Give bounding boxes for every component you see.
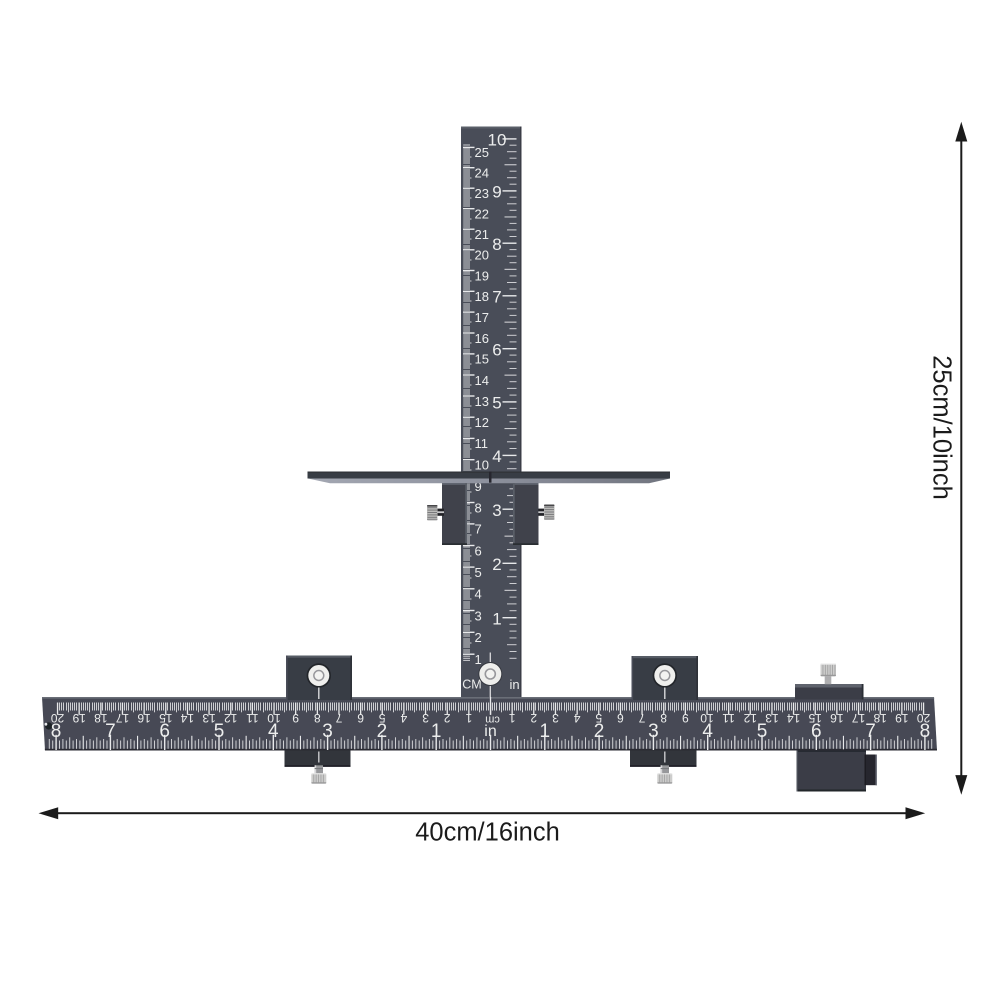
svg-text:25cm/10inch: 25cm/10inch: [928, 355, 956, 500]
svg-text:16: 16: [475, 331, 489, 346]
svg-text:6: 6: [492, 341, 501, 360]
svg-text:17: 17: [852, 711, 866, 725]
svg-text:8: 8: [492, 235, 501, 254]
svg-text:2: 2: [530, 711, 537, 725]
svg-text:CM: CM: [462, 678, 481, 692]
svg-text:3: 3: [552, 711, 559, 725]
svg-text:40cm/16inch: 40cm/16inch: [415, 819, 560, 847]
svg-text:4: 4: [492, 447, 501, 466]
svg-text:1: 1: [465, 711, 472, 725]
svg-text:in: in: [509, 677, 519, 692]
svg-text:7: 7: [475, 522, 482, 537]
svg-text:3: 3: [648, 721, 659, 742]
svg-text:17: 17: [475, 310, 489, 325]
svg-text:1: 1: [431, 721, 442, 742]
svg-text:5: 5: [475, 565, 482, 580]
svg-text:6: 6: [357, 711, 364, 725]
svg-text:5: 5: [757, 721, 768, 742]
svg-text:9: 9: [492, 183, 501, 202]
svg-text:21: 21: [475, 227, 489, 242]
svg-text:18: 18: [475, 289, 489, 304]
svg-text:5: 5: [214, 721, 225, 742]
svg-text:10: 10: [475, 458, 489, 473]
svg-text:6: 6: [159, 721, 170, 742]
svg-text:2: 2: [444, 711, 451, 725]
svg-text:17: 17: [116, 711, 130, 725]
svg-text:4: 4: [400, 711, 407, 725]
svg-text:2: 2: [475, 630, 482, 645]
svg-text:1: 1: [508, 711, 515, 725]
svg-text:11: 11: [246, 711, 259, 725]
svg-text:24: 24: [475, 166, 489, 181]
svg-text:8: 8: [475, 500, 482, 515]
svg-text:8: 8: [660, 711, 667, 725]
svg-text:16: 16: [830, 711, 844, 725]
svg-text:4: 4: [268, 721, 279, 742]
svg-text:7: 7: [492, 288, 501, 307]
svg-text:19: 19: [72, 711, 86, 725]
svg-text:7: 7: [105, 721, 116, 742]
svg-text:6: 6: [811, 721, 822, 742]
svg-text:8: 8: [51, 721, 62, 742]
svg-text:9: 9: [682, 711, 689, 725]
svg-text:4: 4: [475, 587, 482, 602]
svg-text:12: 12: [475, 415, 489, 430]
svg-text:19: 19: [475, 268, 489, 283]
svg-text:4: 4: [573, 711, 580, 725]
svg-text:3: 3: [475, 608, 482, 623]
svg-text:9: 9: [292, 711, 299, 725]
svg-text:11: 11: [475, 436, 489, 451]
svg-text:15: 15: [475, 352, 489, 367]
svg-text:14: 14: [180, 711, 194, 725]
svg-text:1: 1: [492, 610, 501, 629]
svg-text:6: 6: [475, 543, 482, 558]
svg-text:5: 5: [492, 394, 501, 413]
svg-text:3: 3: [322, 721, 333, 742]
svg-text:3: 3: [422, 711, 429, 725]
svg-text:12: 12: [224, 711, 238, 725]
svg-text:2: 2: [492, 555, 501, 574]
svg-text:23: 23: [475, 186, 489, 201]
svg-text:14: 14: [475, 373, 489, 388]
svg-text:7: 7: [638, 711, 645, 725]
svg-text:12: 12: [743, 711, 757, 725]
svg-text:6: 6: [617, 711, 624, 725]
svg-text:2: 2: [594, 721, 605, 742]
svg-text:3: 3: [492, 501, 501, 520]
svg-text:7: 7: [865, 721, 876, 742]
svg-text:1: 1: [475, 652, 482, 667]
svg-text:22: 22: [475, 207, 489, 222]
svg-text:13: 13: [475, 394, 489, 409]
svg-text:19: 19: [895, 711, 909, 725]
svg-text:7: 7: [335, 711, 342, 725]
svg-text:10: 10: [488, 131, 507, 150]
svg-text:16: 16: [137, 711, 151, 725]
svg-text:in: in: [484, 723, 496, 740]
svg-text:8: 8: [920, 721, 931, 742]
svg-text:4: 4: [702, 721, 713, 742]
svg-text:8: 8: [314, 711, 321, 725]
svg-text:20: 20: [475, 248, 489, 263]
svg-text:2: 2: [377, 721, 388, 742]
svg-text:14: 14: [787, 711, 801, 725]
svg-text:11: 11: [722, 711, 735, 725]
svg-text:1: 1: [540, 721, 551, 742]
